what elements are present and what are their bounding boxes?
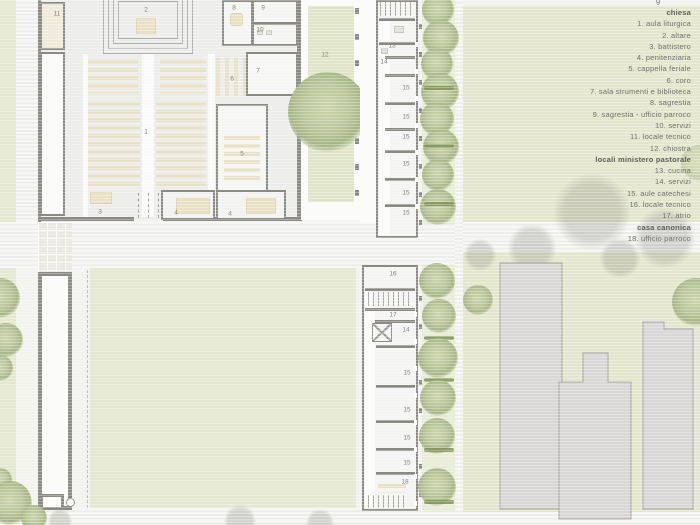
kitchen-fixture — [394, 26, 404, 33]
room-4a-cabinet — [176, 198, 210, 214]
left-road — [16, 0, 40, 230]
row-tree — [420, 380, 456, 416]
legend-section-header: locali ministero pastorale — [465, 154, 691, 165]
lw-wall-8 — [376, 472, 415, 475]
office-desk — [378, 484, 406, 493]
hedge-mark — [424, 500, 454, 504]
legend-item: 8. sagrestia — [465, 97, 691, 108]
legend-item: 3. battistero — [465, 41, 691, 52]
existing-building-a — [500, 263, 562, 509]
legend-item: 18. ufficio parroco — [465, 233, 691, 244]
clipped-title-fragment: g — [656, 0, 660, 5]
row-tree — [419, 263, 455, 299]
right-path — [455, 0, 463, 525]
uw-wall-7 — [385, 150, 415, 153]
entrance-door-2 — [148, 193, 149, 218]
wc-fixture-c — [381, 48, 388, 54]
lw-wall-6 — [376, 420, 415, 423]
west-gallery — [40, 52, 65, 216]
existing-building-b — [559, 353, 631, 519]
legend-item: 9. sagrestia - ufficio parroco — [465, 109, 691, 120]
entrance-door-1 — [138, 193, 139, 218]
edge-tree — [21, 505, 47, 525]
legend-list: chiesa1. aula liturgica2. altare3. batti… — [465, 7, 691, 244]
uw-door-gaps — [415, 20, 418, 230]
room-7-sala-strumenti — [246, 52, 298, 96]
lw-wall-2 — [365, 308, 415, 311]
pews-main-right — [156, 102, 206, 188]
legend-item: 1. aula liturgica — [465, 18, 691, 29]
legend: chiesa1. aula liturgica2. altare3. batti… — [465, 7, 691, 244]
site-plan: g chiesa1. aula liturgica2. altare3. bat… — [0, 0, 700, 525]
sacristy-divider-h — [251, 22, 298, 25]
row-tree — [422, 159, 454, 191]
room-4b-cabinet — [246, 198, 276, 214]
upper-wing-stair — [380, 2, 415, 16]
elevator-shaft — [372, 323, 392, 342]
legend-item: 7. sala strumenti e biblioteca — [465, 86, 691, 97]
pews-front-left — [88, 60, 138, 94]
legend-item: 6. coro — [465, 75, 691, 86]
legend-item: 11. locale tecnico — [465, 131, 691, 142]
property-dashed-line — [87, 270, 88, 508]
lw-wall-5 — [376, 385, 415, 388]
legend-item: 5. cappella feriale — [465, 63, 691, 74]
wc-fixture-b — [266, 30, 272, 35]
church-south-wall-left — [38, 217, 134, 221]
lower-wing-stair-bottom — [368, 495, 408, 508]
row-tree — [418, 338, 458, 378]
gate-mark — [66, 498, 75, 507]
uw-wall-6 — [385, 128, 415, 131]
legend-section-header: casa canonica — [465, 222, 691, 233]
upper-walkway — [360, 0, 376, 222]
paved-path — [38, 222, 72, 274]
garden-wall — [38, 272, 72, 510]
edge-tree — [0, 323, 23, 357]
hedge-mark — [424, 448, 454, 452]
lw-wall-4 — [376, 345, 415, 348]
uw-wall-1 — [379, 18, 415, 21]
uw-wall-8 — [385, 178, 415, 181]
uw-wall-9 — [385, 204, 415, 207]
baptismal-font — [90, 192, 112, 204]
chapel-pews — [224, 136, 260, 182]
lower-wing-stair-top — [368, 292, 410, 306]
pews-main-left — [88, 102, 140, 188]
legend-item: 13. cucina — [465, 165, 691, 176]
room-11-locale-tecnico — [40, 2, 65, 50]
altar-table — [136, 18, 156, 34]
row-tree — [422, 299, 456, 333]
cloister-tree — [288, 72, 368, 152]
legend-item: 12. chiostra — [465, 143, 691, 154]
pews-front-right — [160, 60, 206, 94]
uw-wall-3 — [385, 56, 415, 59]
existing-buildings — [465, 250, 700, 525]
row-tree — [420, 189, 456, 225]
hedge-mark — [424, 144, 454, 148]
hedge-mark — [424, 86, 454, 90]
legend-item: 16. locale tecnico — [465, 199, 691, 210]
legend-item: 15. aule catechesi — [465, 188, 691, 199]
legend-item: 10. servizi — [465, 120, 691, 131]
uw-wall-5 — [385, 102, 415, 105]
uw-wall-4 — [385, 74, 415, 77]
hedge-mark — [424, 202, 454, 206]
lw-wall-1 — [365, 288, 415, 291]
legend-item: 4. penitenziaria — [465, 52, 691, 63]
legend-section-header: chiesa — [465, 7, 691, 18]
existing-building-c — [643, 322, 693, 509]
legend-item: 17. atrio — [465, 210, 691, 221]
lw-door-gaps — [414, 290, 417, 508]
uw-wall-2 — [379, 42, 415, 45]
garden-wall-cap — [40, 494, 64, 510]
edge-tree — [0, 278, 20, 318]
entrance-door-3 — [158, 193, 159, 218]
wc-fixture-a — [257, 30, 263, 35]
legend-item: 14. servizi — [465, 176, 691, 187]
lw-wall-7 — [376, 448, 415, 451]
south-lawn — [90, 268, 356, 508]
sacristy-table — [230, 13, 243, 26]
legend-item: 2. altare — [465, 30, 691, 41]
